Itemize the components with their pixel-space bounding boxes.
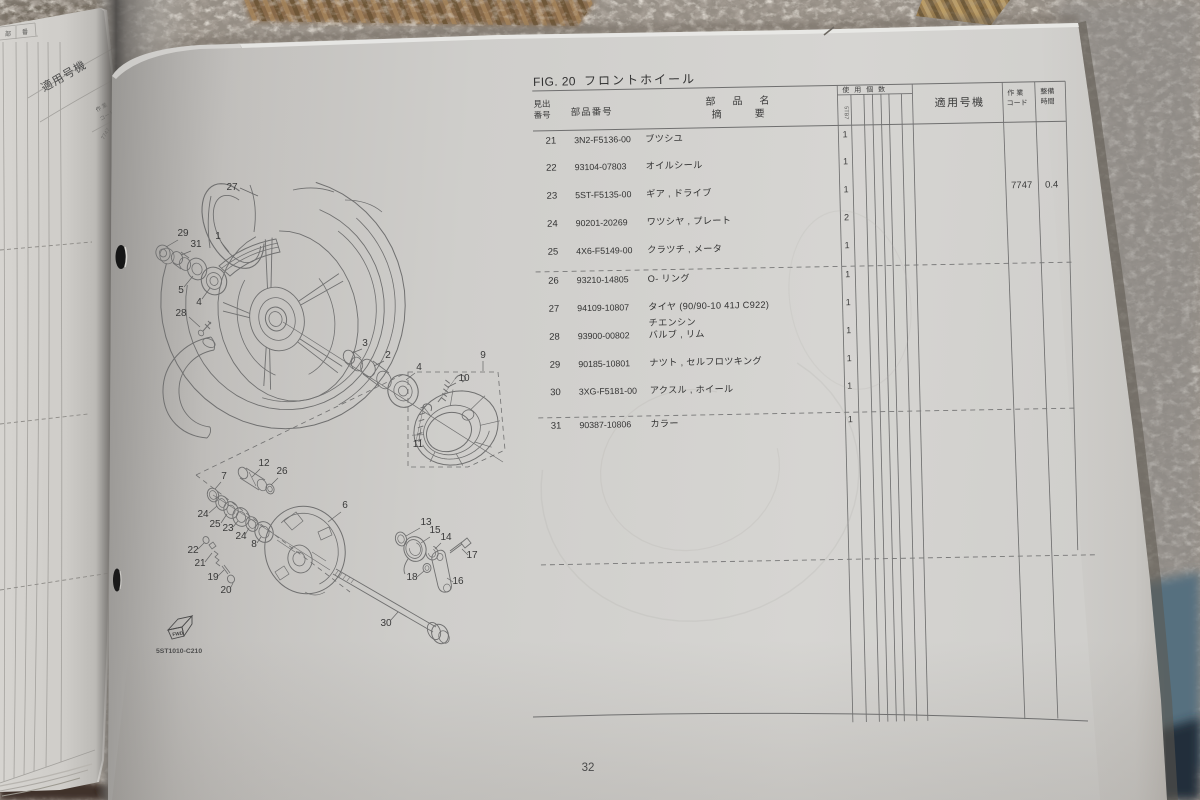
svg-text:24: 24 bbox=[547, 219, 558, 230]
svg-text:15: 15 bbox=[429, 525, 441, 536]
svg-text:4: 4 bbox=[196, 297, 202, 308]
svg-text:5ST-F5135-00: 5ST-F5135-00 bbox=[575, 189, 632, 200]
svg-text:93104-07803: 93104-07803 bbox=[575, 161, 627, 172]
svg-text:1: 1 bbox=[847, 353, 852, 363]
svg-text:27: 27 bbox=[226, 182, 238, 193]
svg-text:16: 16 bbox=[452, 576, 464, 587]
svg-text:7747: 7747 bbox=[1011, 180, 1032, 191]
svg-text:12: 12 bbox=[258, 458, 270, 469]
svg-text:20: 20 bbox=[220, 585, 232, 596]
svg-text:93900-00802: 93900-00802 bbox=[578, 330, 630, 341]
svg-text:31: 31 bbox=[551, 421, 562, 432]
svg-text:23: 23 bbox=[222, 523, 234, 534]
svg-text:32: 32 bbox=[582, 762, 595, 774]
svg-text:31: 31 bbox=[190, 239, 202, 250]
svg-text:28: 28 bbox=[549, 332, 560, 343]
svg-text:26: 26 bbox=[276, 466, 288, 477]
svg-text:6: 6 bbox=[342, 500, 348, 511]
svg-text:10: 10 bbox=[458, 373, 470, 384]
svg-text:1: 1 bbox=[843, 129, 848, 139]
svg-text:93210-14805: 93210-14805 bbox=[577, 274, 629, 285]
svg-text:ギア , ドライブ: ギア , ドライブ bbox=[646, 187, 712, 199]
svg-text:1: 1 bbox=[845, 269, 850, 279]
svg-text:94109-10807: 94109-10807 bbox=[577, 302, 629, 313]
svg-text:摘: 摘 bbox=[712, 108, 722, 121]
svg-text:適用号機: 適用号機 bbox=[934, 95, 984, 110]
svg-text:要: 要 bbox=[755, 108, 765, 120]
svg-text:品: 品 bbox=[732, 95, 742, 107]
svg-text:番号: 番号 bbox=[534, 110, 551, 120]
svg-text:11: 11 bbox=[413, 439, 424, 450]
svg-text:2: 2 bbox=[844, 212, 849, 222]
svg-text:番: 番 bbox=[22, 29, 28, 36]
svg-text:5TB7: 5TB7 bbox=[843, 106, 849, 119]
svg-text:FIG. 20: FIG. 20 bbox=[533, 74, 576, 89]
svg-text:21: 21 bbox=[546, 136, 557, 147]
svg-text:2: 2 bbox=[385, 350, 391, 361]
svg-text:フロントホイール: フロントホイール bbox=[584, 72, 696, 88]
svg-text:時間: 時間 bbox=[1040, 97, 1054, 105]
svg-text:3: 3 bbox=[362, 338, 368, 349]
svg-text:4X6-F5149-00: 4X6-F5149-00 bbox=[576, 245, 633, 256]
svg-text:名: 名 bbox=[759, 94, 769, 107]
svg-text:1: 1 bbox=[215, 231, 221, 242]
svg-text:1: 1 bbox=[846, 325, 851, 335]
svg-text:O- リング: O- リング bbox=[648, 272, 690, 284]
svg-text:1: 1 bbox=[844, 184, 849, 194]
svg-text:ナツト , セルフロツキング: ナツト , セルフロツキング bbox=[649, 355, 762, 368]
svg-text:3XG-F5181-00: 3XG-F5181-00 bbox=[579, 386, 637, 397]
svg-text:25: 25 bbox=[548, 247, 559, 258]
svg-text:部: 部 bbox=[705, 95, 715, 108]
svg-text:4: 4 bbox=[416, 362, 422, 373]
svg-text:30: 30 bbox=[550, 387, 561, 398]
svg-text:カラー: カラー bbox=[650, 418, 679, 429]
svg-text:5: 5 bbox=[178, 285, 184, 296]
svg-text:27: 27 bbox=[549, 304, 560, 315]
svg-text:コード: コード bbox=[1006, 99, 1027, 107]
svg-text:14: 14 bbox=[440, 532, 452, 543]
svg-text:チエンシン: チエンシン bbox=[648, 317, 696, 328]
svg-text:整備: 整備 bbox=[1040, 86, 1054, 95]
svg-text:バルブ , リム: バルブ , リム bbox=[649, 328, 705, 340]
svg-text:23: 23 bbox=[547, 191, 558, 202]
svg-text:5ST1010-C210: 5ST1010-C210 bbox=[156, 648, 202, 655]
svg-text:90387-10806: 90387-10806 bbox=[579, 419, 631, 430]
svg-text:クラツチ , メータ: クラツチ , メータ bbox=[647, 244, 722, 255]
svg-text:ワツシヤ , プレート: ワツシヤ , プレート bbox=[647, 215, 732, 227]
svg-text:7: 7 bbox=[221, 471, 227, 482]
svg-text:0.4: 0.4 bbox=[1045, 179, 1058, 190]
svg-text:24: 24 bbox=[197, 509, 209, 520]
svg-text:見出: 見出 bbox=[533, 99, 550, 109]
svg-text:29: 29 bbox=[550, 360, 561, 371]
svg-text:29: 29 bbox=[177, 228, 189, 239]
svg-text:17: 17 bbox=[466, 550, 478, 561]
svg-text:3N2-F5136-00: 3N2-F5136-00 bbox=[574, 134, 631, 145]
svg-text:1: 1 bbox=[843, 156, 848, 166]
svg-text:24: 24 bbox=[235, 531, 247, 542]
svg-text:1: 1 bbox=[845, 240, 850, 250]
svg-text:18: 18 bbox=[406, 572, 418, 583]
svg-text:28: 28 bbox=[175, 308, 187, 319]
svg-text:オイルシール: オイルシール bbox=[646, 160, 703, 171]
svg-text:22: 22 bbox=[187, 545, 199, 556]
svg-text:25: 25 bbox=[209, 519, 221, 530]
svg-text:90201-20269: 90201-20269 bbox=[576, 217, 628, 228]
svg-text:19: 19 bbox=[207, 572, 219, 583]
svg-text:22: 22 bbox=[546, 163, 557, 174]
svg-text:1: 1 bbox=[847, 381, 852, 391]
svg-text:1: 1 bbox=[846, 297, 851, 307]
svg-text:26: 26 bbox=[548, 276, 559, 287]
svg-text:8: 8 bbox=[251, 539, 257, 550]
svg-text:部品番号: 部品番号 bbox=[571, 106, 613, 119]
svg-text:ブツシユ: ブツシユ bbox=[645, 132, 683, 144]
svg-text:21: 21 bbox=[194, 558, 206, 569]
svg-text:9: 9 bbox=[480, 350, 486, 361]
svg-text:部: 部 bbox=[5, 30, 11, 38]
svg-text:90185-10801: 90185-10801 bbox=[578, 358, 630, 369]
svg-text:30: 30 bbox=[380, 618, 392, 629]
svg-text:作 業: 作 業 bbox=[1007, 88, 1023, 97]
